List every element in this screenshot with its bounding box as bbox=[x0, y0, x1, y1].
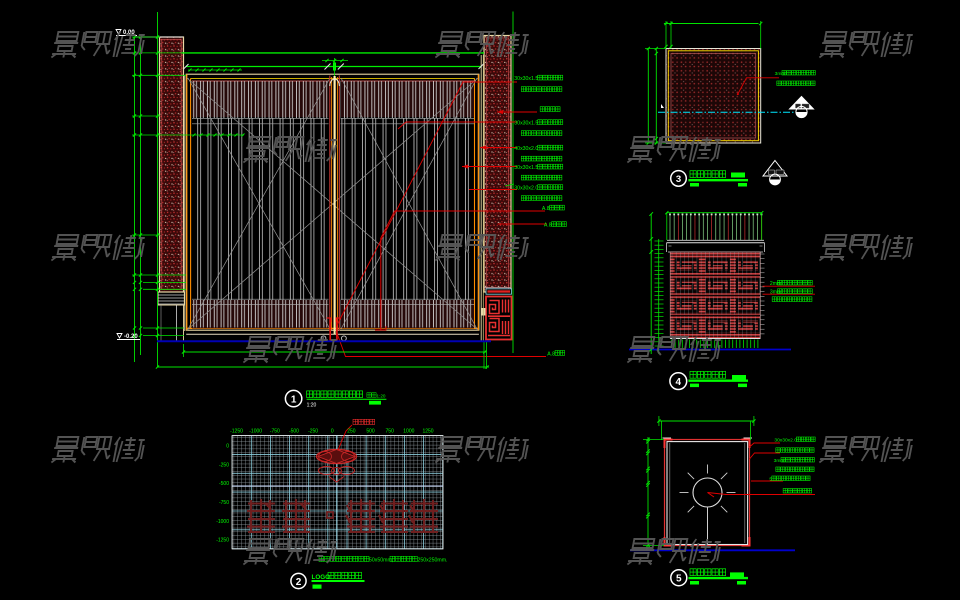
svg-text:250: 250 bbox=[347, 429, 356, 435]
svg-text:250x250mm.: 250x250mm. bbox=[418, 558, 448, 564]
svg-text:30x30x2.0: 30x30x2.0 bbox=[514, 186, 538, 192]
svg-text:40x30x2.0: 40x30x2.0 bbox=[514, 146, 538, 152]
svg-text:1:20: 1:20 bbox=[307, 403, 317, 409]
svg-text:0: 0 bbox=[226, 444, 229, 450]
svg-text:2: 2 bbox=[296, 577, 302, 588]
svg-text:-250: -250 bbox=[308, 429, 318, 435]
svg-text:1250: 1250 bbox=[422, 429, 433, 435]
svg-text:30x30x1.5: 30x30x1.5 bbox=[514, 121, 538, 127]
svg-text:0: 0 bbox=[331, 429, 334, 435]
svg-text:A.8: A.8 bbox=[544, 223, 552, 229]
svg-text:1: 1 bbox=[291, 394, 297, 405]
svg-text:-500: -500 bbox=[289, 429, 299, 435]
svg-text:30x30x1.5: 30x30x1.5 bbox=[514, 165, 538, 171]
svg-text:500: 500 bbox=[366, 429, 375, 435]
svg-text:30x30x2.0: 30x30x2.0 bbox=[774, 438, 797, 444]
svg-text:4: 4 bbox=[676, 377, 682, 388]
svg-text:-500: -500 bbox=[219, 481, 229, 487]
svg-text:-750: -750 bbox=[270, 429, 280, 435]
svg-text:1000: 1000 bbox=[403, 429, 414, 435]
svg-text:A.8: A.8 bbox=[542, 206, 550, 212]
svg-text:-1250: -1250 bbox=[216, 538, 229, 544]
svg-text:50x50mm,: 50x50mm, bbox=[369, 558, 393, 564]
svg-text:A.8: A.8 bbox=[547, 351, 555, 357]
svg-text:1:20: 1:20 bbox=[377, 393, 386, 398]
svg-text:-1000: -1000 bbox=[216, 519, 229, 525]
svg-text:-1000: -1000 bbox=[249, 429, 262, 435]
svg-text:LOGO: LOGO bbox=[312, 574, 331, 581]
svg-text:-1250: -1250 bbox=[230, 429, 243, 435]
svg-text:750: 750 bbox=[386, 429, 395, 435]
svg-text:3: 3 bbox=[676, 174, 681, 185]
svg-text:-750: -750 bbox=[219, 500, 229, 506]
svg-text:5: 5 bbox=[676, 574, 682, 585]
svg-text:30x30x1.5: 30x30x1.5 bbox=[514, 76, 538, 82]
svg-text:-250: -250 bbox=[219, 462, 229, 468]
